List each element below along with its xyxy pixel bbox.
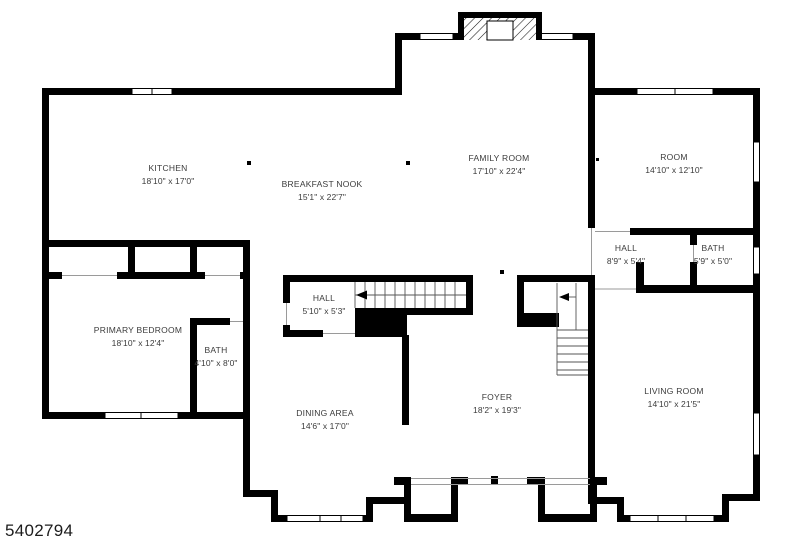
room-name: DINING AREA [296, 407, 354, 420]
room-name: FAMILY ROOM [468, 152, 529, 165]
floor-plan-drawing [0, 0, 800, 555]
room-name: FOYER [473, 391, 521, 404]
stair-direction-arrow [356, 291, 367, 300]
room-dims: 17'10" x 22'4" [468, 165, 529, 178]
room-label-family-room: FAMILY ROOM 17'10" x 22'4" [468, 152, 529, 178]
room-dims: 14'6" x 17'0" [296, 420, 354, 433]
room-label-hall-right: HALL 8'9" x 5'4" [607, 242, 645, 268]
door-openings [62, 228, 694, 485]
room-dims: 18'2" x 19'3" [473, 404, 521, 417]
room-label-living-room: LIVING ROOM 14'10" x 21'5" [644, 385, 703, 411]
fireplace-icon [458, 12, 542, 40]
room-name: BREAKFAST NOOK [282, 178, 363, 191]
room-label-hall-center: HALL 5'10" x 5'3" [302, 292, 345, 318]
room-name: HALL [607, 242, 645, 255]
room-name: KITCHEN [142, 162, 195, 175]
room-name: PRIMARY BEDROOM [94, 324, 182, 337]
floor-plan: KITCHEN 18'10" x 17'0" BREAKFAST NOOK 15… [0, 0, 800, 555]
room-dims: 14'10" x 21'5" [644, 398, 703, 411]
room-dims: 4'10" x 8'0" [194, 357, 237, 370]
room-label-dining-area: DINING AREA 14'6" x 17'0" [296, 407, 354, 433]
room-dims: 5'9" x 5'0" [694, 255, 732, 268]
room-label-bath-right: BATH 5'9" x 5'0" [694, 242, 732, 268]
room-name: LIVING ROOM [644, 385, 703, 398]
room-label-breakfast-nook: BREAKFAST NOOK 15'1" x 22'7" [282, 178, 363, 204]
room-dims: 5'10" x 5'3" [302, 305, 345, 318]
room-label-primary-bedroom: PRIMARY BEDROOM 18'10" x 12'4" [94, 324, 182, 350]
walls [42, 33, 760, 522]
stair-direction-arrow [559, 293, 569, 301]
staircase-foyer [557, 283, 588, 375]
room-name: BATH [194, 344, 237, 357]
room-name: ROOM [645, 151, 703, 164]
room-label-bath-left: BATH 4'10" x 8'0" [194, 344, 237, 370]
room-dims: 8'9" x 5'4" [607, 255, 645, 268]
staircase-main [355, 282, 466, 308]
room-label-kitchen: KITCHEN 18'10" x 17'0" [142, 162, 195, 188]
room-name: HALL [302, 292, 345, 305]
room-dims: 15'1" x 22'7" [282, 191, 363, 204]
room-label-foyer: FOYER 18'2" x 19'3" [473, 391, 521, 417]
room-label-room: ROOM 14'10" x 12'10" [645, 151, 703, 177]
room-dims: 18'10" x 17'0" [142, 175, 195, 188]
photo-id: 5402794 [5, 521, 73, 541]
room-dims: 14'10" x 12'10" [645, 164, 703, 177]
room-dims: 18'10" x 12'4" [94, 337, 182, 350]
room-name: BATH [694, 242, 732, 255]
